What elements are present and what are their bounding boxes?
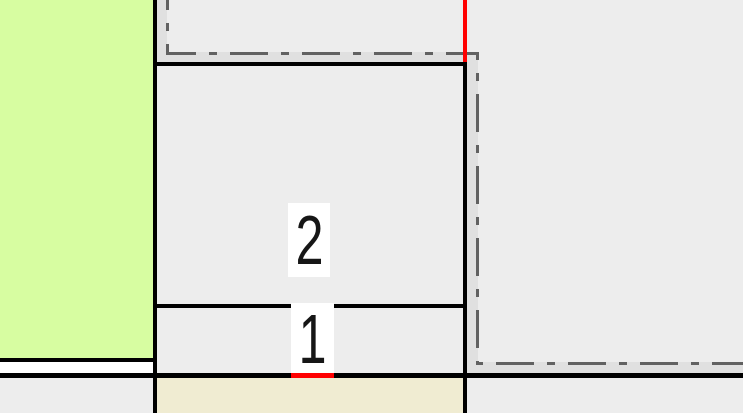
parcel-number-1: 1	[298, 304, 326, 374]
boundary-line-vertical-right	[463, 62, 467, 413]
district-boundary-dashdot-line	[168, 0, 743, 364]
boundary-line-bottom	[0, 373, 743, 378]
map-viewport[interactable]: 2 1	[0, 0, 743, 413]
highlighted-boundary-red-line-bottom	[291, 373, 334, 378]
highlighted-boundary-red-line-vertical	[463, 0, 467, 62]
boundary-line-green-bottom	[0, 358, 157, 362]
parcel-label-1: 1	[291, 303, 334, 375]
boundary-line-top	[153, 62, 467, 66]
parcel-label-2: 2	[288, 203, 330, 277]
parcel-number-2: 2	[295, 205, 323, 275]
